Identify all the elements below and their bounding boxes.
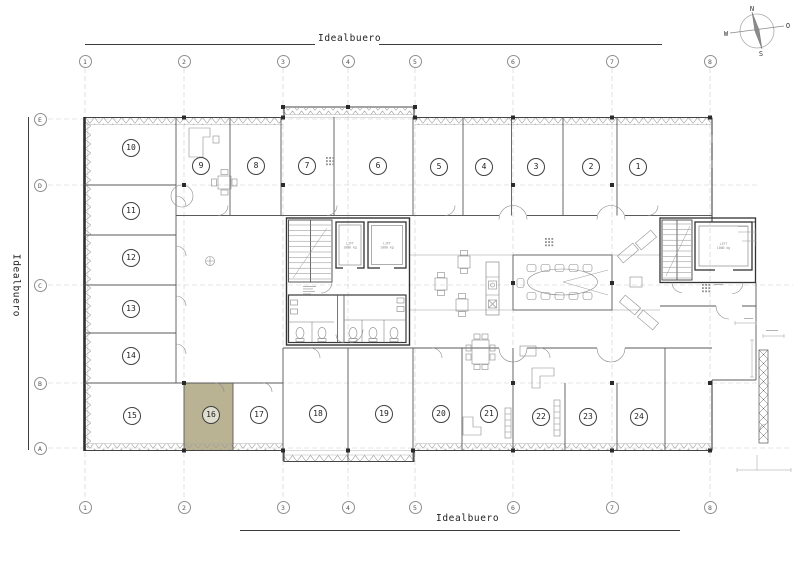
- floor-plan-page: LIFT 1000 kg LIFT 1000 kg LIFT 1000 kg I…: [0, 0, 800, 569]
- compass-rose: N O S W: [720, 2, 798, 62]
- compass-south-label: S: [759, 50, 763, 58]
- door-arcs: [176, 196, 766, 430]
- grid-col-top-6: 6: [507, 55, 520, 68]
- lift-capacity: 1000 kg: [343, 246, 357, 250]
- grid-row-A: A: [34, 442, 47, 455]
- vent-grid: [702, 284, 710, 292]
- grid-col-bottom-7: 7: [606, 501, 619, 514]
- room-label-3[interactable]: 3: [527, 158, 545, 176]
- grid-col-top-7: 7: [606, 55, 619, 68]
- floor-plan-drawing: LIFT 1000 kg LIFT 1000 kg LIFT 1000 kg: [0, 0, 800, 569]
- title-top: Idealbuero: [318, 33, 381, 44]
- room-label-1[interactable]: 1: [629, 158, 647, 176]
- outer-walls: [84, 107, 712, 462]
- vent-grid: [326, 157, 334, 165]
- room-label-15[interactable]: 15: [123, 407, 141, 425]
- title-bottom-line: [240, 530, 680, 531]
- grid-row-D: D: [34, 179, 47, 192]
- room-label-19[interactable]: 19: [375, 405, 393, 423]
- grid-col-bottom-5: 5: [409, 501, 422, 514]
- grid-col-top-5: 5: [409, 55, 422, 68]
- room-label-11[interactable]: 11: [122, 202, 140, 220]
- room-label-14[interactable]: 14: [122, 347, 140, 365]
- lift-capacity: 1000 kg: [380, 246, 394, 250]
- grid-row-C: C: [34, 279, 47, 292]
- room-label-23[interactable]: 23: [579, 408, 597, 426]
- room-label-5[interactable]: 5: [430, 158, 448, 176]
- grid-col-bottom-1: 1: [79, 501, 92, 514]
- vent-grid: [545, 238, 553, 246]
- grid-col-top-3: 3: [277, 55, 290, 68]
- grid-col-bottom-8: 8: [704, 501, 717, 514]
- room-label-20[interactable]: 20: [432, 405, 450, 423]
- room-label-13[interactable]: 13: [122, 300, 140, 318]
- grid-col-top-1: 1: [79, 55, 92, 68]
- room-label-2[interactable]: 2: [582, 158, 600, 176]
- room-label-10[interactable]: 10: [122, 139, 140, 157]
- right-core: [660, 218, 756, 283]
- room-label-24[interactable]: 24: [630, 408, 648, 426]
- grid-col-bottom-2: 2: [178, 501, 191, 514]
- title-top-line-right: [379, 44, 662, 45]
- annotation-smudges: [303, 226, 778, 331]
- grid-row-E: E: [34, 113, 47, 126]
- title-top-line-left: [85, 44, 315, 45]
- room-label-7[interactable]: 7: [298, 157, 316, 175]
- title-bottom: Idealbuero: [436, 513, 496, 524]
- grid-col-top-8: 8: [704, 55, 717, 68]
- grid-lines: [48, 68, 793, 500]
- grid-col-top-2: 2: [178, 55, 191, 68]
- compass-north-label: N: [750, 5, 754, 13]
- grid-col-bottom-3: 3: [277, 501, 290, 514]
- room-label-12[interactable]: 12: [122, 249, 140, 267]
- room-label-6[interactable]: 6: [369, 157, 387, 175]
- grid-col-bottom-6: 6: [507, 501, 520, 514]
- lift-capacity: 1000 kg: [717, 246, 731, 250]
- room-label-16[interactable]: 16: [202, 406, 220, 424]
- compass-west-label: W: [724, 30, 729, 38]
- grid-col-bottom-4: 4: [342, 501, 355, 514]
- room-label-9[interactable]: 9: [192, 157, 210, 175]
- room-label-18[interactable]: 18: [309, 405, 327, 423]
- grid-col-top-4: 4: [342, 55, 355, 68]
- room-label-4[interactable]: 4: [475, 158, 493, 176]
- title-left-line: [28, 117, 29, 450]
- grid-row-B: B: [34, 377, 47, 390]
- compass-east-label: O: [786, 22, 790, 30]
- room-label-17[interactable]: 17: [250, 406, 268, 424]
- compass-needle: [752, 12, 762, 49]
- room-label-21[interactable]: 21: [480, 405, 498, 423]
- room-label-8[interactable]: 8: [247, 157, 265, 175]
- title-left: Idealbuero: [11, 251, 22, 321]
- room-label-22[interactable]: 22: [532, 408, 550, 426]
